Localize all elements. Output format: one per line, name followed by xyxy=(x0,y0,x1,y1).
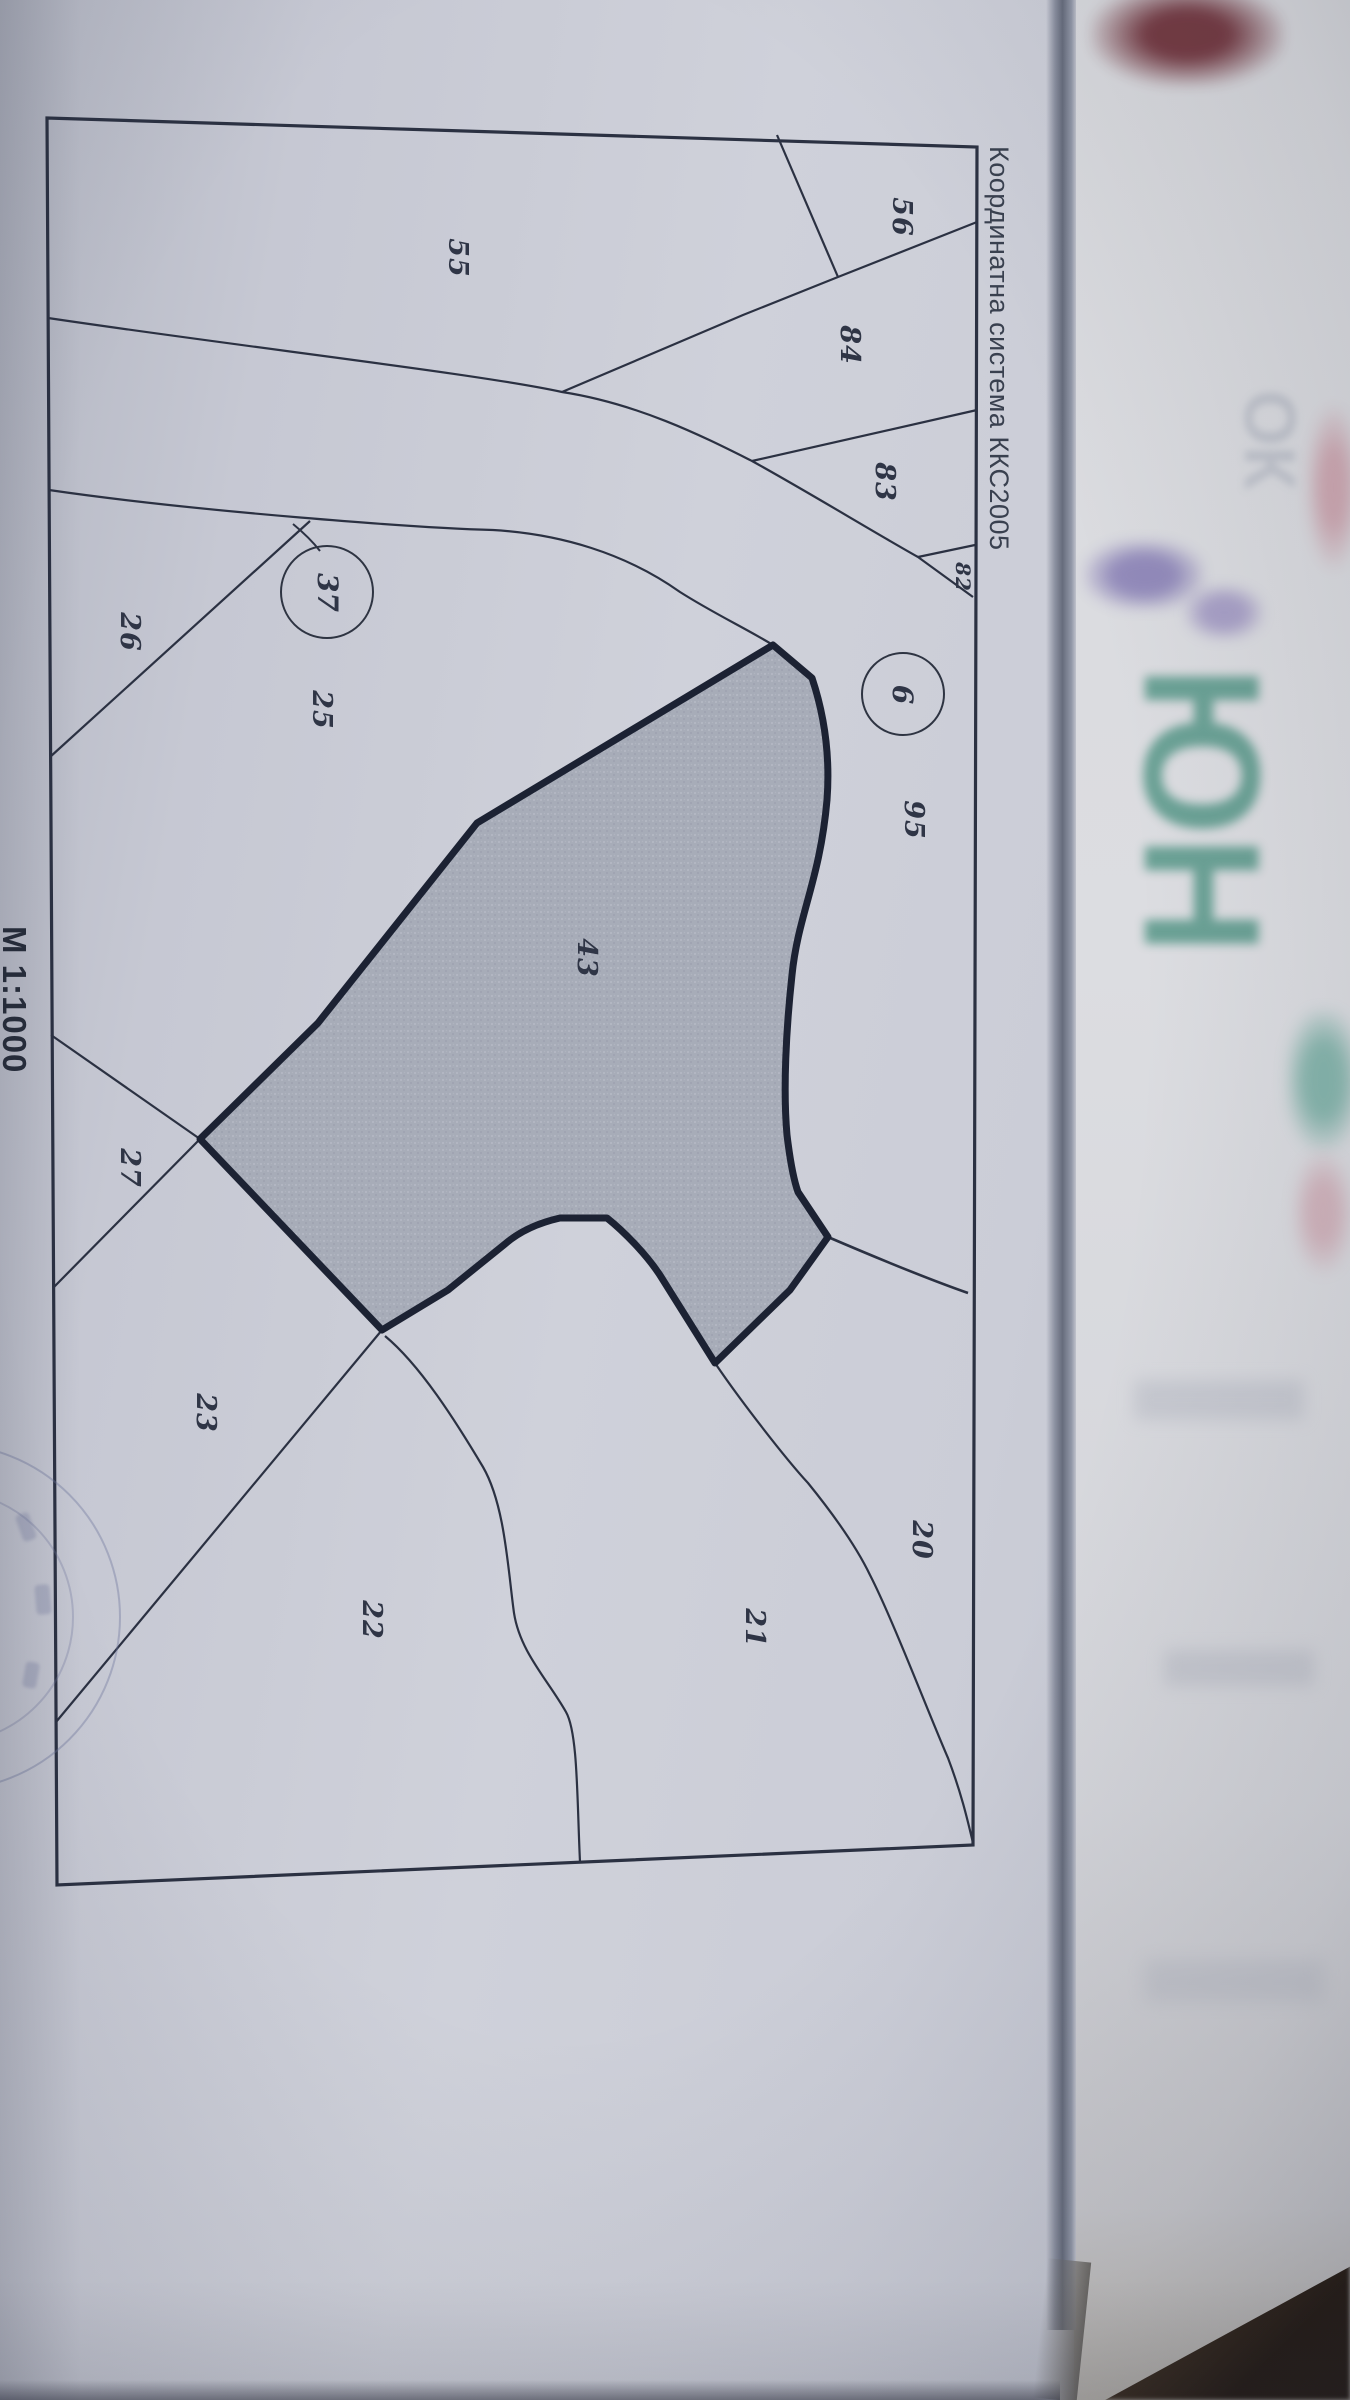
parcel-label-56: 56 xyxy=(857,172,947,262)
parcel-label-27: 27 xyxy=(85,1123,175,1213)
stamp-text-mark2 xyxy=(34,1584,52,1615)
circled-label-37: 37 xyxy=(280,545,374,639)
cadastral-map-drawing xyxy=(0,0,1350,2400)
parcel-label-25: 25 xyxy=(277,665,367,755)
parcel-label-43: 43 xyxy=(542,913,632,1003)
parcel-label-22: 22 xyxy=(327,1575,417,1665)
parcel-label-23: 23 xyxy=(161,1368,251,1458)
paper-bottom-shadow xyxy=(0,2380,1060,2400)
parcel-label-21: 21 xyxy=(710,1583,800,1673)
boundary-55-56 xyxy=(777,135,838,277)
circled-label-37-text: 37 xyxy=(311,573,344,612)
parcel-label-26: 26 xyxy=(85,587,175,677)
parcel-label-84: 84 xyxy=(805,300,895,390)
map-scale-label: М 1:1000 xyxy=(0,926,33,1102)
parcel-label-20: 20 xyxy=(877,1495,967,1585)
circled-label-6: 6 xyxy=(861,652,945,736)
parcel-label-95: 95 xyxy=(869,775,959,865)
circled-label-6-text: 6 xyxy=(886,684,919,703)
parcel-label-55: 55 xyxy=(413,213,503,303)
parcel-label-83: 83 xyxy=(840,437,930,527)
boundary-95-20 xyxy=(828,1237,968,1293)
coordinate-system-label: Координатна система ККС2005 xyxy=(984,146,1014,570)
scanned-cadastral-map-photo: ЮН ОК xyxy=(0,0,1350,2400)
